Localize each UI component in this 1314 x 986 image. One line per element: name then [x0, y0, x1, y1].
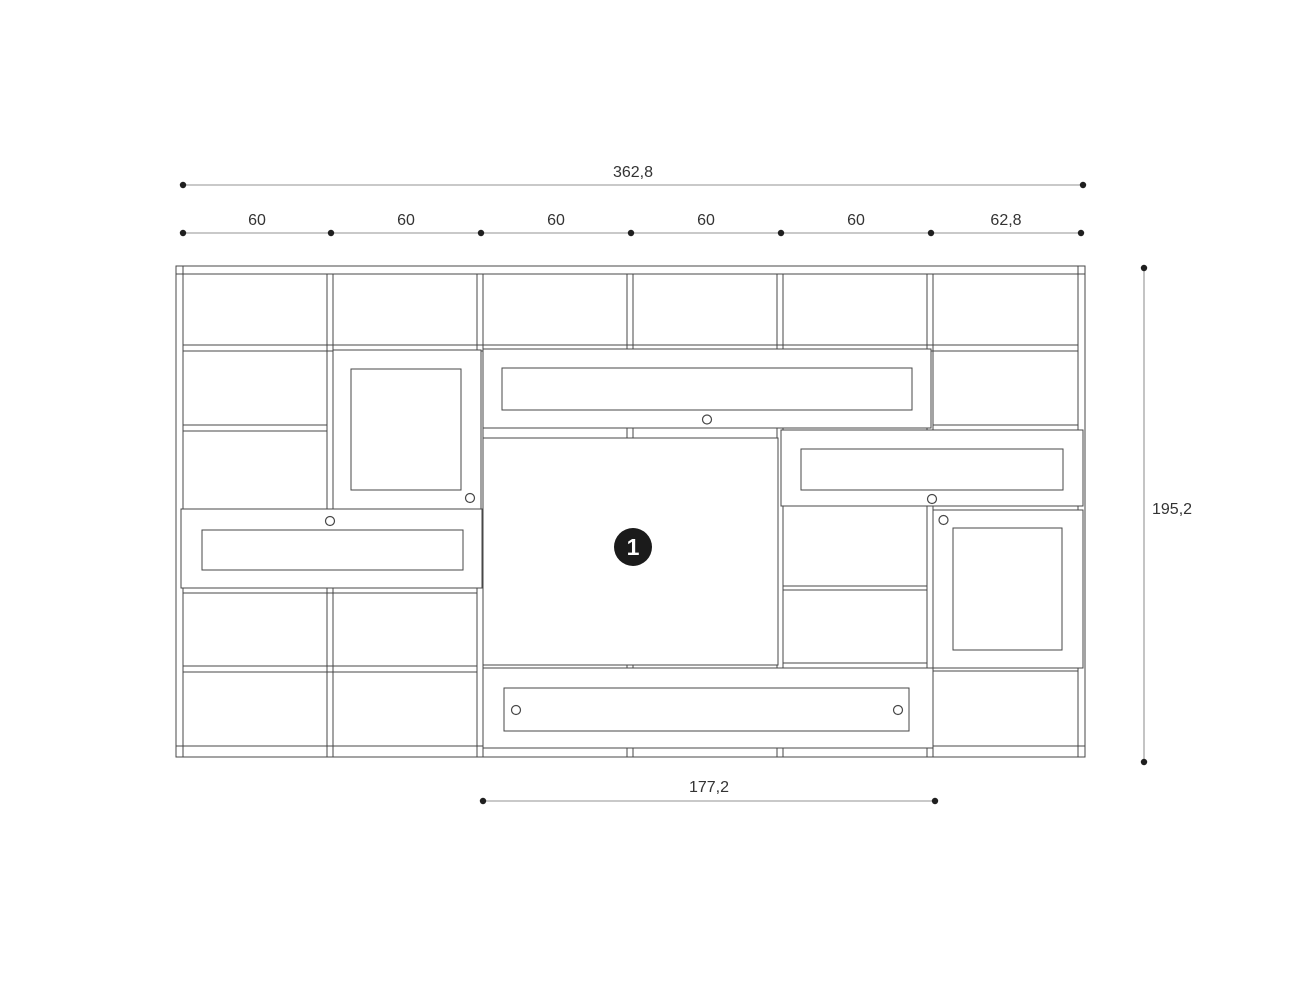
drop-flap-door-right: [781, 430, 1083, 506]
drawer-front: [483, 668, 933, 748]
dimension-tick-dot: [928, 230, 934, 236]
dimension-label-segment-3: 60: [547, 212, 565, 229]
dimension-label-segment-2: 60: [397, 212, 415, 229]
cabinet-door-right: [933, 510, 1083, 668]
dimension-label-segment-6: 62,8: [990, 212, 1021, 229]
dimension-tick-dot: [478, 230, 484, 236]
door-front: [333, 350, 481, 509]
dimension-bottom-width: 177,2: [480, 779, 938, 804]
dimension-label-segment-1: 60: [248, 212, 266, 229]
dimension-endpoint-dot: [932, 798, 938, 804]
dimension-label-segment-5: 60: [847, 212, 865, 229]
dimension-endpoint-dot: [1080, 182, 1086, 188]
dimension-tick-dot: [1078, 230, 1084, 236]
knob-icon: [326, 517, 335, 526]
dimension-tick-dot: [628, 230, 634, 236]
dimension-label-height: 195,2: [1152, 501, 1192, 518]
knob-icon: [894, 706, 903, 715]
drawing-canvas: 362,8 60 60 60 60 60 62,8 195,2: [0, 0, 1314, 986]
dimension-segments: 60 60 60 60 60 62,8: [180, 212, 1084, 236]
dimension-endpoint-dot: [480, 798, 486, 804]
knob-icon: [512, 706, 521, 715]
knob-icon: [703, 415, 712, 424]
dimension-tick-dot: [180, 230, 186, 236]
knob-icon: [466, 494, 475, 503]
dimension-label-bottom-width: 177,2: [689, 779, 729, 796]
cabinet-door-left: [333, 350, 481, 509]
drop-flap-door-top: [483, 349, 931, 428]
door-front: [933, 510, 1083, 668]
dimension-label-segment-4: 60: [697, 212, 715, 229]
item-badge: 1: [614, 528, 652, 566]
dimension-endpoint-dot: [1141, 759, 1147, 765]
dimension-endpoint-dot: [180, 182, 186, 188]
knob-icon: [928, 495, 937, 504]
drop-flap-door-left: [181, 509, 482, 588]
wall-unit-technical-drawing: 362,8 60 60 60 60 60 62,8 195,2: [0, 0, 1314, 986]
knob-icon: [939, 516, 948, 525]
dimension-total-width: 362,8: [180, 164, 1086, 188]
dimension-label-total-width: 362,8: [613, 164, 653, 181]
bottom-drawer: [483, 668, 933, 748]
badge-number: 1: [627, 534, 640, 560]
dimension-endpoint-dot: [1141, 265, 1147, 271]
dimension-tick-dot: [778, 230, 784, 236]
dimension-tick-dot: [328, 230, 334, 236]
dimension-height: 195,2: [1141, 265, 1192, 765]
